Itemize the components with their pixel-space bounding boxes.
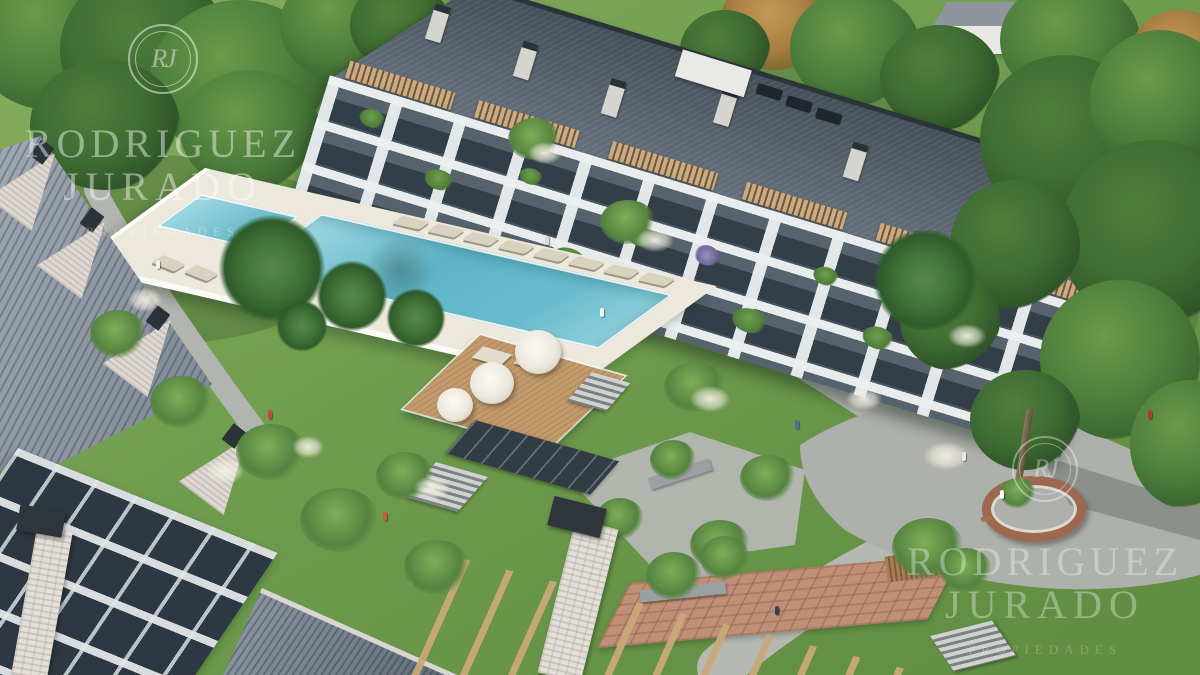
bench-planting [1000,478,1036,508]
garden-shrub [404,540,470,594]
patio-umbrella [437,388,473,422]
person-figure [775,606,779,615]
pampas-grass [206,458,244,484]
pampas-grass [636,228,674,252]
balcony-planting [357,106,387,131]
palm-shadow-on-pool [360,240,440,300]
garden-shrub [90,310,146,358]
palm-tree [870,230,980,330]
person-figure [962,452,966,461]
person-figure [1148,410,1152,419]
person-figure [268,410,272,419]
balcony-planting [517,165,545,187]
balcony-planting [422,166,457,194]
planter-shrub [650,440,696,480]
palm-tree [276,300,328,352]
person-figure [1000,490,1004,499]
person-figure [545,236,549,245]
person-figure [156,260,160,269]
aerial-render: RJ RODRIGUEZ JURADO PROPIEDADES RJ RODRI… [0,0,1200,675]
pampas-grass [690,386,730,412]
pampas-grass [846,388,882,410]
balcony-planting [860,323,897,353]
garden-shrub [300,488,380,552]
planter-shrub [700,536,750,580]
patio-umbrella [515,330,561,374]
pampas-grass [292,436,324,458]
patio-umbrella [470,362,514,404]
balcony-wisteria [691,242,722,269]
planter-shrub [940,548,992,592]
planter-shrub [740,455,796,501]
pampas-grass [414,476,450,500]
planter-shrub [646,552,702,600]
garden-shrub [150,376,212,428]
person-figure [600,308,604,317]
pampas-grass [128,288,162,312]
pampas-grass [948,324,986,348]
person-figure [795,420,799,429]
pampas-grass [528,142,562,164]
balcony-planting [729,304,770,337]
balcony-planting [811,264,841,289]
person-figure [383,512,387,521]
